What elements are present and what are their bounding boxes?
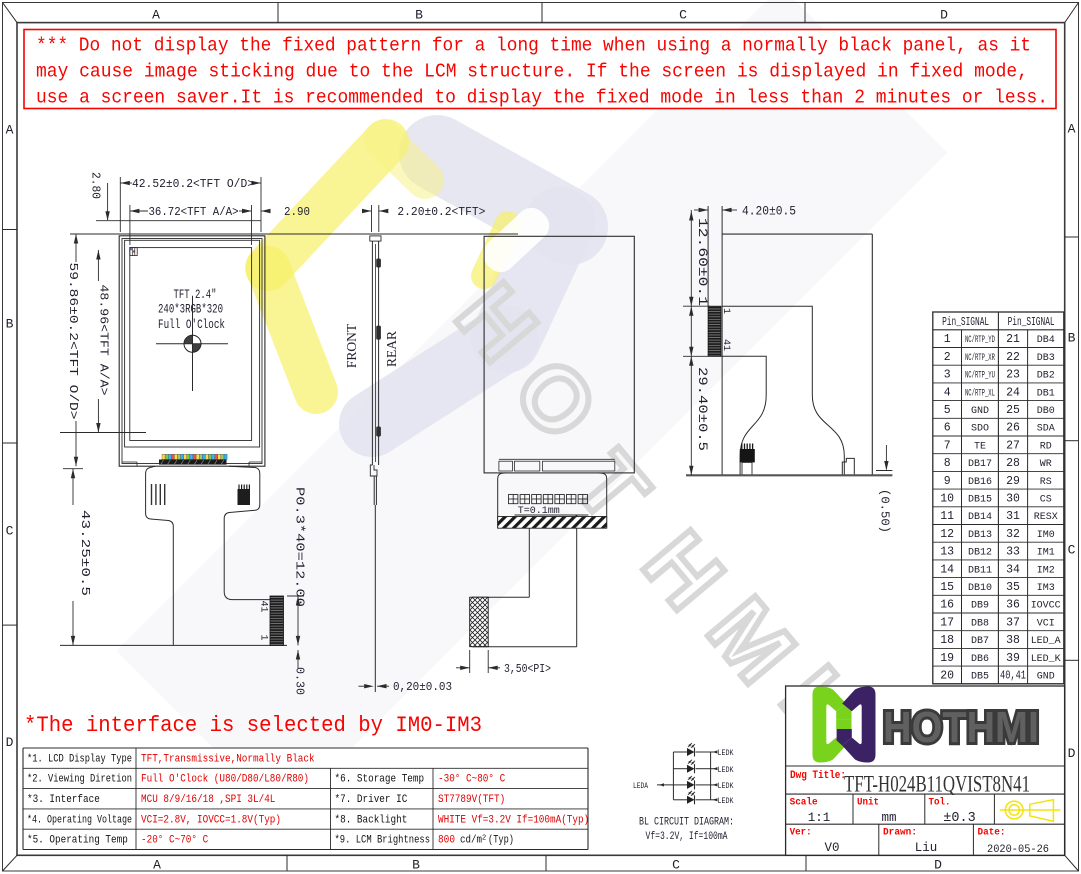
svg-text:240*3RGB*320: 240*3RGB*320	[158, 302, 223, 316]
svg-text:VCI=2.8V, IOVCC=1.8V(Typ): VCI=2.8V, IOVCC=1.8V(Typ)	[141, 814, 281, 826]
svg-text:IM3: IM3	[1037, 583, 1055, 594]
svg-text:Full O'Clock (U80/D80/L80/R80): Full O'Clock (U80/D80/L80/R80)	[141, 774, 309, 786]
svg-text:38: 38	[1006, 634, 1020, 647]
svg-text:0.30: 0.30	[293, 667, 307, 695]
svg-text:24: 24	[1006, 386, 1020, 399]
svg-text:IM0: IM0	[1037, 530, 1055, 541]
svg-text:Vf=3.2V, If=100mA: Vf=3.2V, If=100mA	[646, 831, 728, 843]
svg-text:TE: TE	[974, 441, 986, 452]
svg-text:A: A	[1068, 122, 1076, 137]
svg-text:36.72<TFT A/A>: 36.72<TFT A/A>	[149, 205, 239, 219]
svg-text:GND: GND	[1037, 671, 1055, 682]
svg-text:2.20±0.2<TFT>: 2.20±0.2<TFT>	[397, 205, 485, 219]
svg-text:2.90: 2.90	[284, 205, 310, 219]
svg-text:C: C	[6, 524, 14, 539]
svg-text:DB1: DB1	[1037, 388, 1055, 399]
svg-text:4.20±0.5: 4.20±0.5	[742, 203, 796, 218]
svg-text:20: 20	[940, 669, 954, 682]
svg-text:DB15: DB15	[968, 494, 992, 505]
svg-text:DB4: DB4	[1037, 335, 1055, 346]
svg-text:RESX: RESX	[1034, 512, 1058, 523]
svg-text:32: 32	[1006, 528, 1020, 541]
svg-text:RS: RS	[1040, 477, 1052, 488]
svg-text:use a screen saver.It is recom: use a screen saver.It is recommended to …	[36, 87, 1048, 109]
svg-text:SDO: SDO	[971, 424, 989, 435]
svg-text:9: 9	[944, 475, 951, 488]
svg-text:3,50<PI>: 3,50<PI>	[504, 662, 551, 676]
svg-text:A: A	[6, 123, 14, 138]
svg-text:RD: RD	[1040, 441, 1052, 452]
svg-text:C: C	[672, 857, 680, 872]
svg-text:DB5: DB5	[971, 671, 989, 682]
svg-text:27: 27	[1006, 439, 1020, 452]
svg-text:*6. Storage Temp: *6. Storage Temp	[335, 774, 425, 786]
svg-text:B: B	[412, 857, 420, 872]
svg-text:TFT,Transmissive,Normally Blac: TFT,Transmissive,Normally Black	[141, 753, 315, 765]
svg-text:16: 16	[940, 599, 954, 612]
svg-text:22: 22	[1006, 351, 1020, 364]
svg-text:D: D	[1068, 746, 1076, 761]
svg-text:D: D	[940, 8, 948, 23]
svg-text:±0.3: ±0.3	[943, 811, 975, 826]
svg-text:37: 37	[1006, 616, 1020, 629]
svg-text:Unit: Unit	[857, 797, 879, 809]
svg-text:36: 36	[1006, 599, 1020, 612]
svg-text:LEDK: LEDK	[718, 765, 735, 775]
svg-text:35: 35	[1006, 581, 1020, 594]
svg-text:Pin_SIGNAL: Pin_SIGNAL	[1008, 316, 1055, 329]
svg-text:*3. Interface: *3. Interface	[27, 794, 100, 806]
svg-text:LEDA: LEDA	[633, 781, 649, 791]
svg-text:7: 7	[944, 439, 951, 452]
svg-text:5: 5	[944, 404, 951, 417]
svg-text:DB3: DB3	[1037, 353, 1055, 364]
svg-text:800: 800	[438, 835, 455, 847]
svg-text:41: 41	[720, 339, 731, 351]
svg-text:DB8: DB8	[971, 618, 989, 629]
svg-text:B: B	[6, 317, 14, 332]
svg-text:MCU 8/9/16/18 ,SPI 3L/4L: MCU 8/9/16/18 ,SPI 3L/4L	[141, 794, 275, 806]
svg-text:B: B	[415, 8, 423, 23]
svg-text:1: 1	[258, 634, 269, 640]
svg-text:*** Do not display the fixed p: *** Do not display the fixed pattern for…	[36, 35, 1031, 57]
svg-text:Dwg Title:: Dwg Title:	[790, 770, 846, 782]
svg-text:12.60±0.1: 12.60±0.1	[695, 218, 710, 306]
svg-text:(Typ): (Typ)	[488, 835, 514, 847]
svg-text:*2. Viewing Diretion: *2. Viewing Diretion	[27, 774, 132, 786]
svg-text:2: 2	[482, 835, 486, 843]
svg-text:8: 8	[944, 457, 951, 470]
svg-text:11: 11	[940, 510, 954, 523]
svg-text:10: 10	[940, 492, 954, 505]
svg-text:29: 29	[1006, 475, 1020, 488]
svg-text:17: 17	[940, 616, 954, 629]
svg-text:ST7789V(TFT): ST7789V(TFT)	[438, 794, 505, 806]
svg-text:Date:: Date:	[978, 827, 1006, 839]
svg-text:*8. Backlight: *8. Backlight	[335, 814, 408, 826]
svg-text:*7. Driver IC: *7. Driver IC	[335, 794, 408, 806]
svg-text:may cause image sticking due t: may cause image sticking due to the LCM …	[36, 61, 1028, 83]
svg-text:26: 26	[1006, 422, 1020, 435]
svg-text:4: 4	[944, 386, 951, 399]
svg-text:*9. LCM Brightness: *9. LCM Brightness	[335, 835, 431, 847]
svg-text:*1. LCD Display Type: *1. LCD Display Type	[27, 753, 132, 765]
svg-text:cd/m: cd/m	[460, 835, 482, 847]
svg-text:59.86±0.2<TFT O/D>: 59.86±0.2<TFT O/D>	[66, 263, 80, 420]
svg-text:TFT-H024B11QVIST8N41: TFT-H024B11QVIST8N41	[844, 772, 1030, 797]
svg-text:FRONT: FRONT	[344, 323, 359, 368]
svg-text:DB6: DB6	[971, 654, 989, 665]
svg-text:-20° C~70° C: -20° C~70° C	[141, 835, 209, 847]
svg-text:DB14: DB14	[968, 512, 992, 523]
svg-text:41: 41	[258, 600, 269, 612]
svg-text:3: 3	[944, 369, 951, 382]
svg-text:12: 12	[940, 528, 954, 541]
svg-text:SDA: SDA	[1037, 424, 1055, 435]
svg-text:1: 1	[944, 333, 951, 346]
svg-text:2.80: 2.80	[89, 172, 103, 199]
svg-text:2020-05-26: 2020-05-26	[987, 844, 1049, 856]
svg-text:WHITE Vf=3.2V If=100mA(Typ): WHITE Vf=3.2V If=100mA(Typ)	[438, 814, 589, 826]
svg-text:*5. Operating Temp: *5. Operating Temp	[27, 835, 128, 847]
svg-text:IOVCC: IOVCC	[1031, 601, 1061, 612]
svg-text:GND: GND	[971, 406, 989, 417]
svg-text:43.25±0.5: 43.25±0.5	[78, 510, 92, 596]
svg-text:48.96<TFT A/A>: 48.96<TFT A/A>	[97, 285, 111, 396]
svg-text:1: 1	[720, 308, 731, 314]
svg-text:40,41: 40,41	[1000, 669, 1026, 682]
svg-text:LEDK: LEDK	[718, 796, 735, 806]
svg-text:19: 19	[940, 652, 954, 665]
svg-text:Scale: Scale	[790, 797, 818, 809]
svg-text:REAR: REAR	[384, 331, 399, 367]
svg-text:LEDK: LEDK	[718, 748, 735, 758]
svg-text:NC/RTP_YD: NC/RTP_YD	[965, 334, 995, 346]
svg-text:A: A	[152, 8, 160, 23]
svg-text:(0.50): (0.50)	[878, 489, 892, 533]
svg-text:23: 23	[1006, 369, 1020, 382]
svg-text:DB10: DB10	[968, 583, 992, 594]
svg-text:15: 15	[940, 581, 954, 594]
svg-text:18: 18	[940, 634, 954, 647]
svg-text:Pin_SIGNAL: Pin_SIGNAL	[942, 316, 989, 329]
svg-text:31: 31	[1006, 510, 1020, 523]
svg-text:DB0: DB0	[1037, 406, 1055, 417]
svg-text:IM2: IM2	[1037, 565, 1055, 576]
svg-text:25: 25	[1006, 404, 1020, 417]
svg-text:B: B	[1068, 331, 1076, 346]
svg-text:C: C	[1068, 543, 1076, 558]
svg-text:*4. Operating Voltage: *4. Operating Voltage	[27, 814, 132, 826]
svg-text:D: D	[6, 735, 14, 750]
svg-text:DB16: DB16	[968, 477, 992, 488]
svg-text:21: 21	[1006, 333, 1020, 346]
svg-text:NC/RTP_XL: NC/RTP_XL	[965, 387, 995, 399]
svg-text:D: D	[934, 857, 942, 872]
svg-text:DB11: DB11	[968, 565, 992, 576]
svg-text:Drawn:: Drawn:	[883, 827, 917, 839]
svg-text:IM1: IM1	[1037, 548, 1055, 559]
svg-text:42.52±0.2<TFT O/D>: 42.52±0.2<TFT O/D>	[132, 177, 254, 191]
svg-text:DB9: DB9	[971, 601, 989, 612]
svg-text:Full O'Clock: Full O'Clock	[158, 318, 225, 332]
svg-text:DB7: DB7	[971, 636, 989, 647]
svg-text:30: 30	[1006, 492, 1020, 505]
svg-text:TFT 2.4″: TFT 2.4″	[174, 288, 217, 302]
svg-text:29.40±0.5: 29.40±0.5	[695, 367, 710, 451]
svg-text:mm: mm	[881, 811, 896, 825]
svg-text:Tol.: Tol.	[929, 797, 951, 809]
svg-text:-30° C~80° C: -30° C~80° C	[438, 774, 506, 786]
svg-text:DB13: DB13	[968, 530, 992, 541]
svg-text:33: 33	[1006, 546, 1020, 559]
svg-text:C: C	[679, 8, 687, 23]
svg-text:39: 39	[1006, 652, 1020, 665]
svg-text:DB12: DB12	[968, 548, 992, 559]
svg-text:LED_A: LED_A	[1031, 636, 1061, 647]
svg-text:14: 14	[940, 563, 954, 576]
svg-text:DB2: DB2	[1037, 371, 1055, 382]
svg-text:NC/RTP_XR: NC/RTP_XR	[965, 352, 995, 364]
svg-text:LED_K: LED_K	[1031, 654, 1061, 665]
svg-text:LEDK: LEDK	[718, 781, 735, 791]
svg-text:Ver:: Ver:	[790, 827, 812, 839]
svg-text:CS: CS	[1040, 494, 1052, 505]
svg-text:HOTHMI: HOTHMI	[883, 703, 1039, 752]
svg-text:0,20±0.03: 0,20±0.03	[393, 680, 452, 694]
svg-text:28: 28	[1006, 457, 1020, 470]
svg-text:WR: WR	[1040, 459, 1052, 470]
svg-text:A: A	[153, 857, 161, 872]
svg-text:34: 34	[1006, 563, 1020, 576]
svg-text:DB17: DB17	[968, 459, 992, 470]
svg-text:BL CIRCUIT DIAGRAM:: BL CIRCUIT DIAGRAM:	[639, 817, 734, 829]
svg-text:1:1: 1:1	[808, 811, 831, 825]
svg-text:V0: V0	[824, 841, 839, 855]
svg-text:2: 2	[944, 351, 951, 364]
svg-text:13: 13	[940, 546, 954, 559]
svg-text:6: 6	[944, 422, 951, 435]
svg-text:VCI: VCI	[1037, 618, 1055, 629]
svg-text:Liu: Liu	[915, 841, 938, 855]
svg-text:*The interface is selected by: *The interface is selected by IM0-IM3	[24, 712, 482, 738]
svg-text:NC/RTP_YU: NC/RTP_YU	[965, 370, 995, 382]
svg-text:P0.3*40=12.00: P0.3*40=12.00	[293, 487, 307, 607]
